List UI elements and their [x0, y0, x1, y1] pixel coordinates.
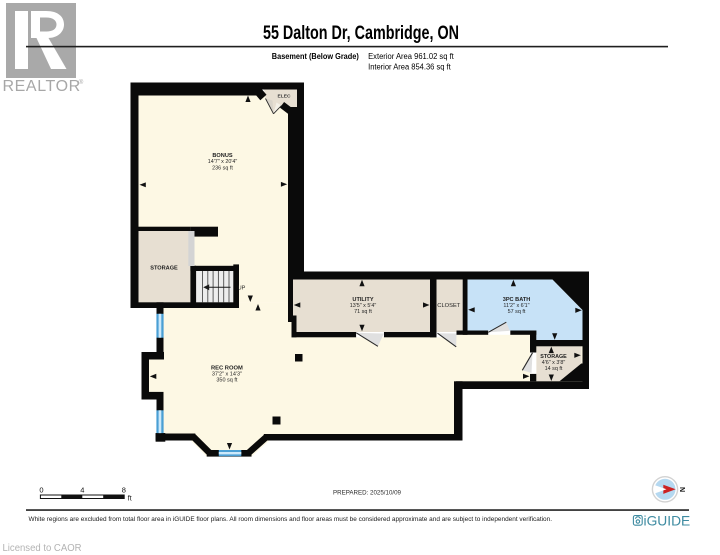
- svg-text:8: 8: [122, 485, 126, 494]
- svg-text:iGUIDE: iGUIDE: [644, 513, 691, 528]
- svg-text:4: 4: [80, 485, 84, 494]
- svg-text:236 sq ft: 236 sq ft: [212, 165, 233, 171]
- svg-text:14 sq ft: 14 sq ft: [545, 366, 563, 372]
- svg-text:White regions are excluded fro: White regions are excluded from total fl…: [29, 516, 553, 523]
- svg-text:Exterior Area 961.02 sq ft: Exterior Area 961.02 sq ft: [368, 52, 454, 61]
- svg-text:350 sq ft: 350 sq ft: [216, 378, 238, 384]
- svg-text:CLOSET: CLOSET: [437, 303, 461, 309]
- svg-text:N: N: [678, 487, 685, 492]
- svg-text:®: ®: [79, 78, 84, 86]
- svg-text:ELEC: ELEC: [277, 94, 291, 100]
- svg-text:57 sq ft: 57 sq ft: [508, 309, 526, 315]
- svg-text:ft: ft: [128, 496, 132, 503]
- svg-text:STORAGE: STORAGE: [150, 266, 178, 272]
- svg-text:55 Dalton Dr, Cambridge, ON: 55 Dalton Dr, Cambridge, ON: [263, 23, 459, 44]
- svg-text:Basement (Below Grade): Basement (Below Grade): [272, 52, 359, 61]
- svg-text:Interior Area 854.36 sq ft: Interior Area 854.36 sq ft: [368, 62, 451, 71]
- svg-text:0: 0: [39, 485, 43, 494]
- svg-text:14'7" x 20'4": 14'7" x 20'4": [208, 159, 238, 165]
- svg-text:PREPARED: 2025/10/09: PREPARED: 2025/10/09: [333, 490, 402, 497]
- svg-text:BONUS: BONUS: [212, 153, 232, 159]
- svg-text:UP: UP: [238, 286, 246, 292]
- svg-text:REC ROOM: REC ROOM: [211, 366, 243, 372]
- svg-text:Licensed to CAOR: Licensed to CAOR: [3, 543, 82, 554]
- svg-text:REALTOR: REALTOR: [3, 78, 81, 95]
- svg-text:71 sq ft: 71 sq ft: [354, 309, 372, 315]
